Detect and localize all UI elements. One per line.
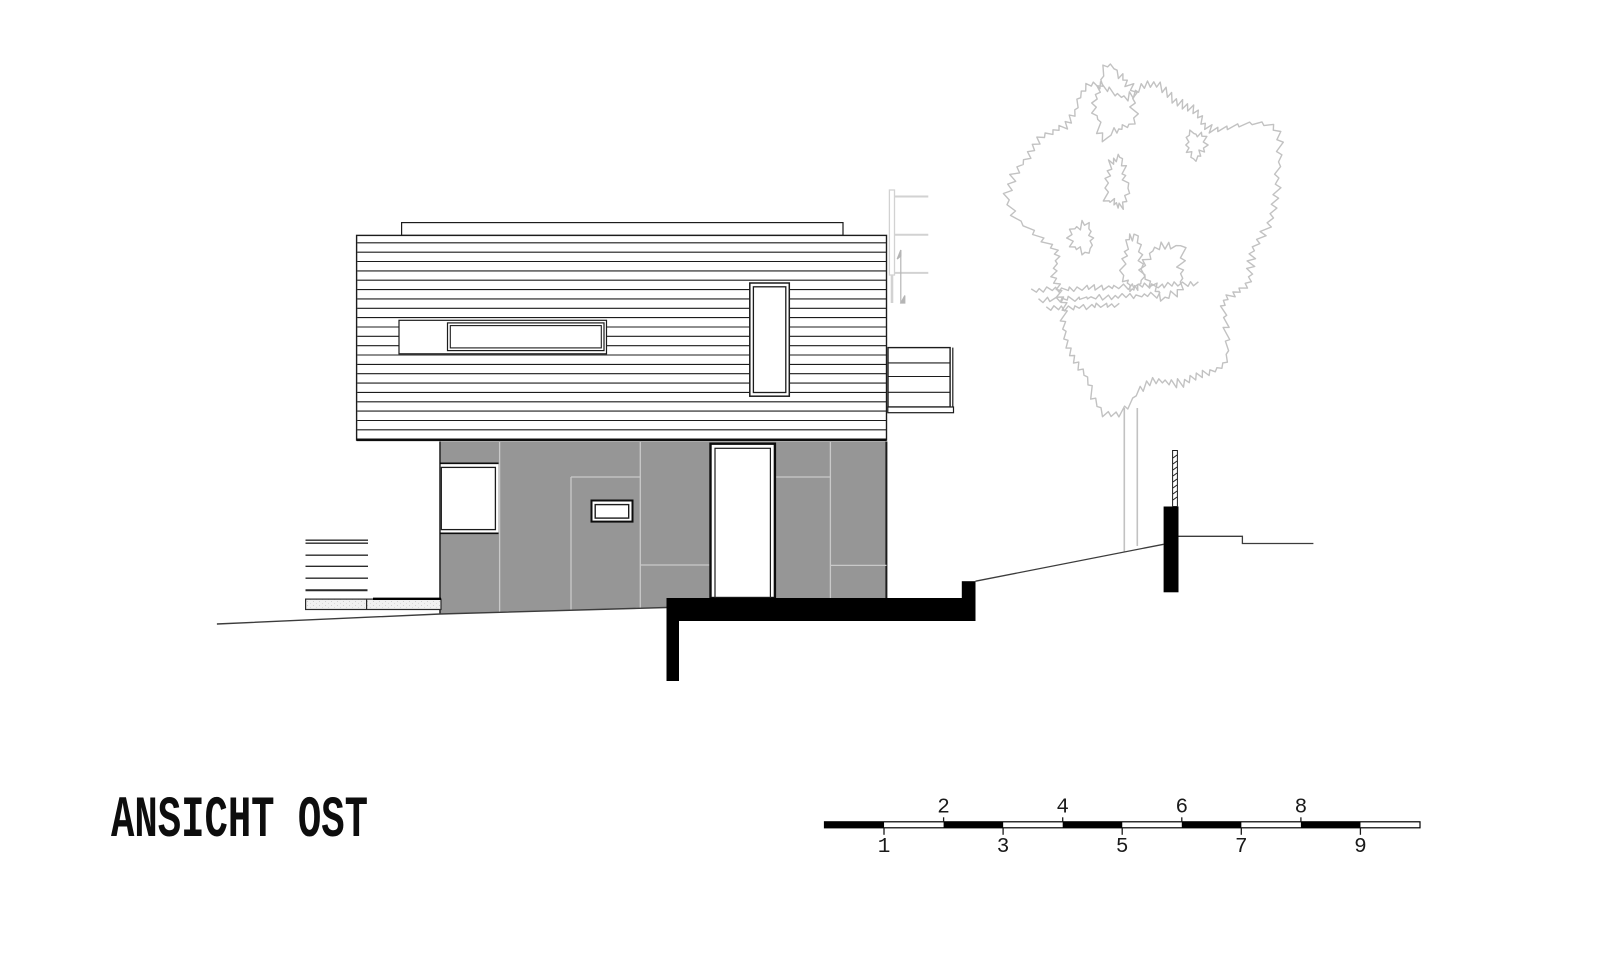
svg-text:2: 2 (937, 797, 950, 820)
svg-text:6: 6 (1175, 797, 1188, 820)
svg-text:3: 3 (997, 836, 1010, 859)
svg-text:4: 4 (1056, 797, 1069, 820)
svg-text:ANSICHT OST: ANSICHT OST (111, 787, 368, 854)
svg-text:1: 1 (878, 836, 891, 859)
svg-text:9: 9 (1354, 836, 1367, 859)
svg-text:7: 7 (1235, 836, 1248, 859)
svg-text:5: 5 (1116, 836, 1129, 859)
svg-text:8: 8 (1295, 797, 1308, 820)
